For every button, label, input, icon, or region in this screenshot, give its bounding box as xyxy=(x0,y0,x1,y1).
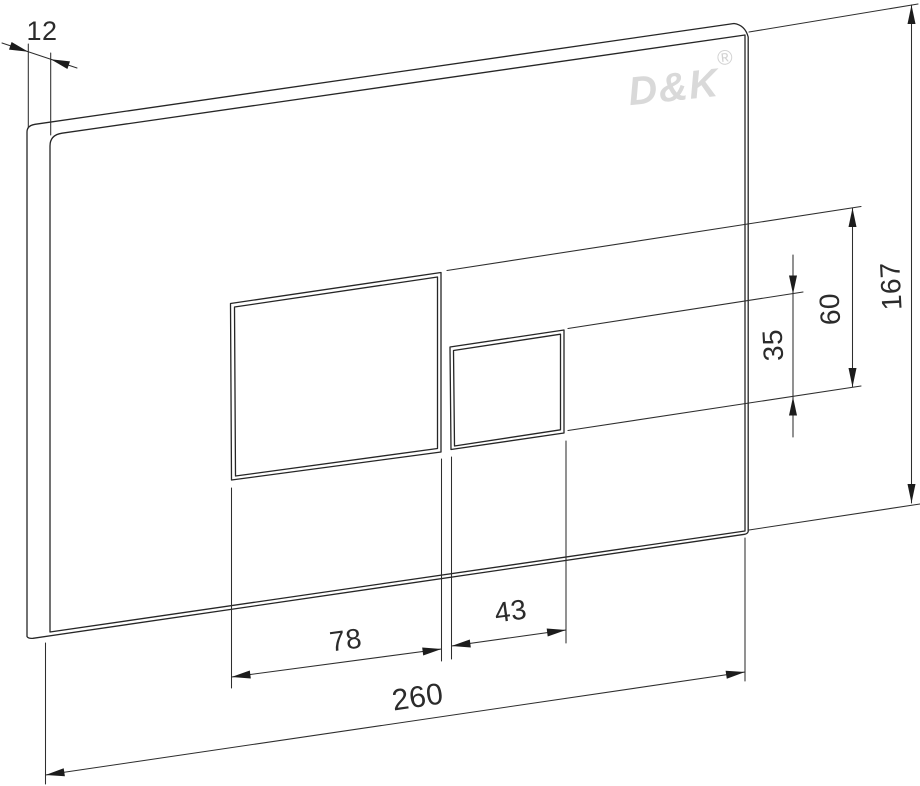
dim-plate-width-label: 260 xyxy=(390,677,446,717)
arrowhead xyxy=(849,208,857,227)
arrowhead xyxy=(547,629,566,637)
arrowhead xyxy=(726,671,745,679)
dim-large-button-height-label: 60 xyxy=(814,292,847,326)
arrowhead xyxy=(789,276,797,295)
extension-line xyxy=(749,504,920,530)
dim-thickness-label: 12 xyxy=(26,16,57,46)
arrowhead xyxy=(789,397,797,416)
plate-front-face xyxy=(50,35,745,632)
arrowhead xyxy=(232,671,251,679)
arrowhead xyxy=(422,648,441,656)
dim-large-button-width-label: 78 xyxy=(328,622,364,657)
technical-drawing: D&K ® 12 167 60 xyxy=(0,0,920,786)
arrowhead xyxy=(46,768,65,776)
arrowhead xyxy=(908,484,916,503)
arrowhead xyxy=(908,5,916,24)
plate: D&K ® xyxy=(27,24,748,639)
dim-plate-height-label: 167 xyxy=(874,261,907,311)
arrowhead xyxy=(452,640,471,648)
dim-plate-height: 167 xyxy=(749,4,920,530)
arrowhead xyxy=(849,368,857,387)
arrowhead xyxy=(51,59,70,69)
dim-small-button-height-label: 35 xyxy=(757,328,790,362)
dim-thickness: 12 xyxy=(2,16,77,135)
registered-trademark-icon: ® xyxy=(716,46,734,71)
dim-small-button-width-label: 43 xyxy=(493,593,529,628)
extension-line xyxy=(749,4,918,32)
arrowhead xyxy=(9,42,28,52)
